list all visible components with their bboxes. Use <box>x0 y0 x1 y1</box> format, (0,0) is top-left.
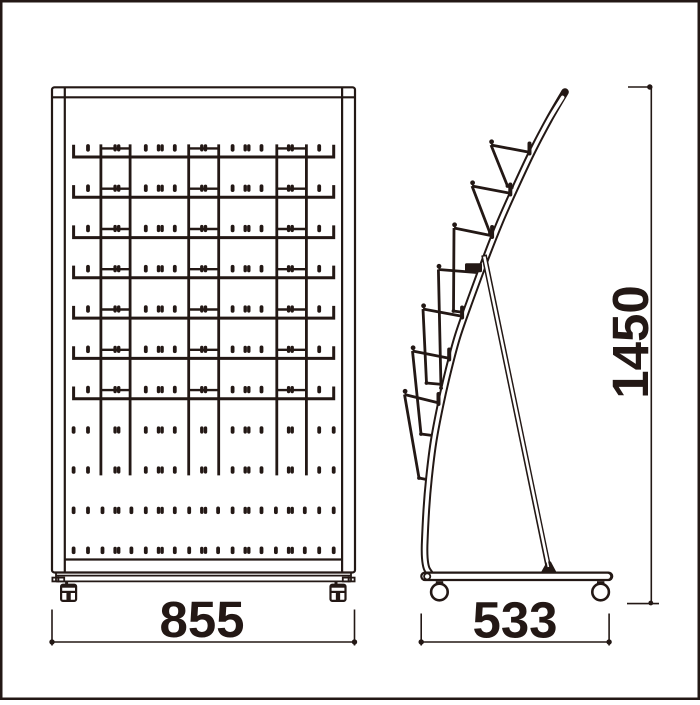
svg-text:1450: 1450 <box>602 285 659 398</box>
svg-text:533: 533 <box>472 591 557 648</box>
svg-text:855: 855 <box>159 591 244 648</box>
